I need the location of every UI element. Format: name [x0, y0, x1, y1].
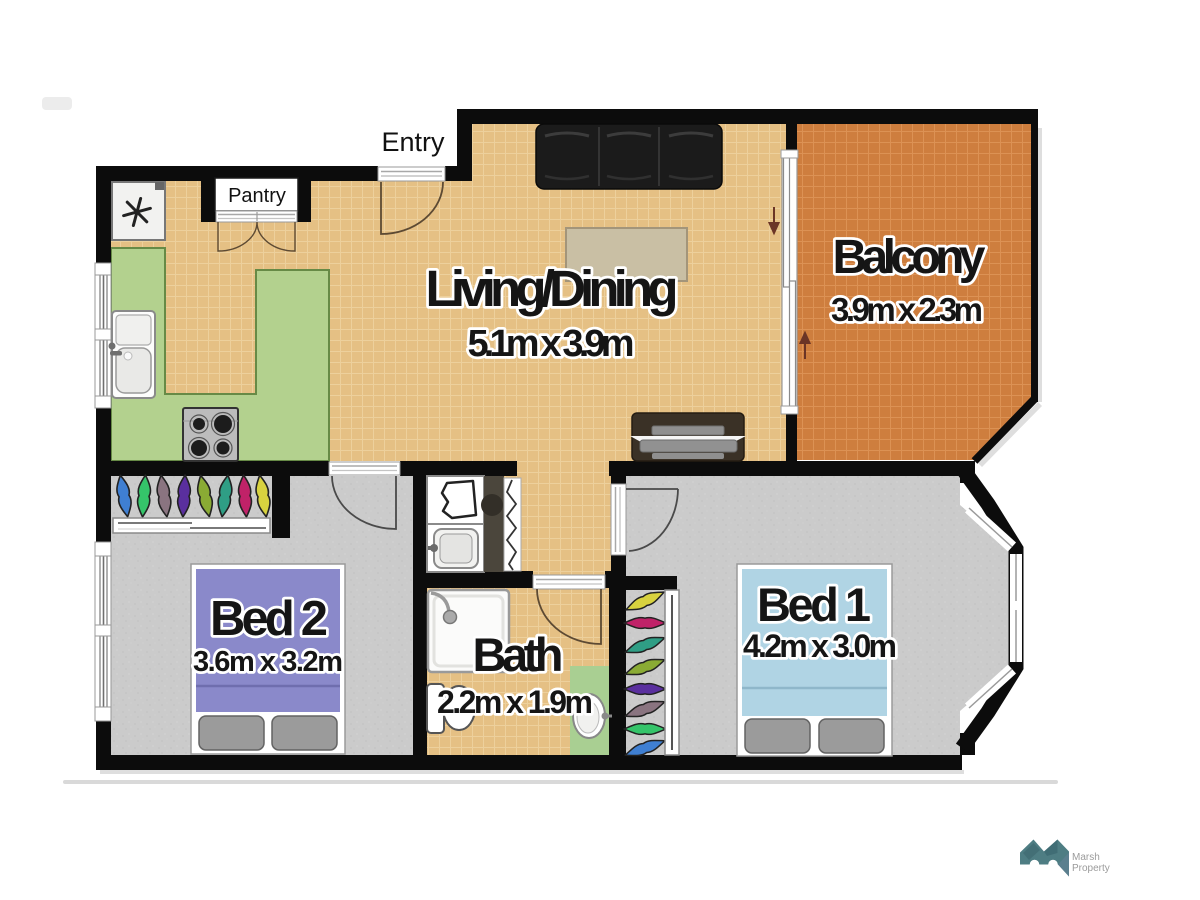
svg-text:4.2m x 3.0m: 4.2m x 3.0m: [743, 628, 897, 664]
svg-text:Balcony: Balcony: [833, 231, 986, 284]
svg-text:Pantry: Pantry: [228, 185, 286, 207]
svg-text:Bath: Bath: [473, 628, 564, 681]
svg-text:Marsh: Marsh: [1072, 852, 1100, 863]
svg-text:3.9m x 2.3m: 3.9m x 2.3m: [831, 291, 983, 328]
svg-text:Entry: Entry: [381, 127, 445, 157]
svg-text:Property: Property: [1072, 863, 1110, 874]
svg-text:5.1m x 3.9m: 5.1m x 3.9m: [468, 323, 635, 365]
svg-text:3.6m x 3.2m: 3.6m x 3.2m: [193, 646, 343, 678]
svg-text:Bed 1: Bed 1: [757, 578, 871, 631]
svg-text:Living/Dining: Living/Dining: [426, 260, 679, 317]
svg-text:Bed 2: Bed 2: [210, 592, 328, 646]
svg-text:2.2m x 1.9m: 2.2m x 1.9m: [437, 684, 593, 720]
